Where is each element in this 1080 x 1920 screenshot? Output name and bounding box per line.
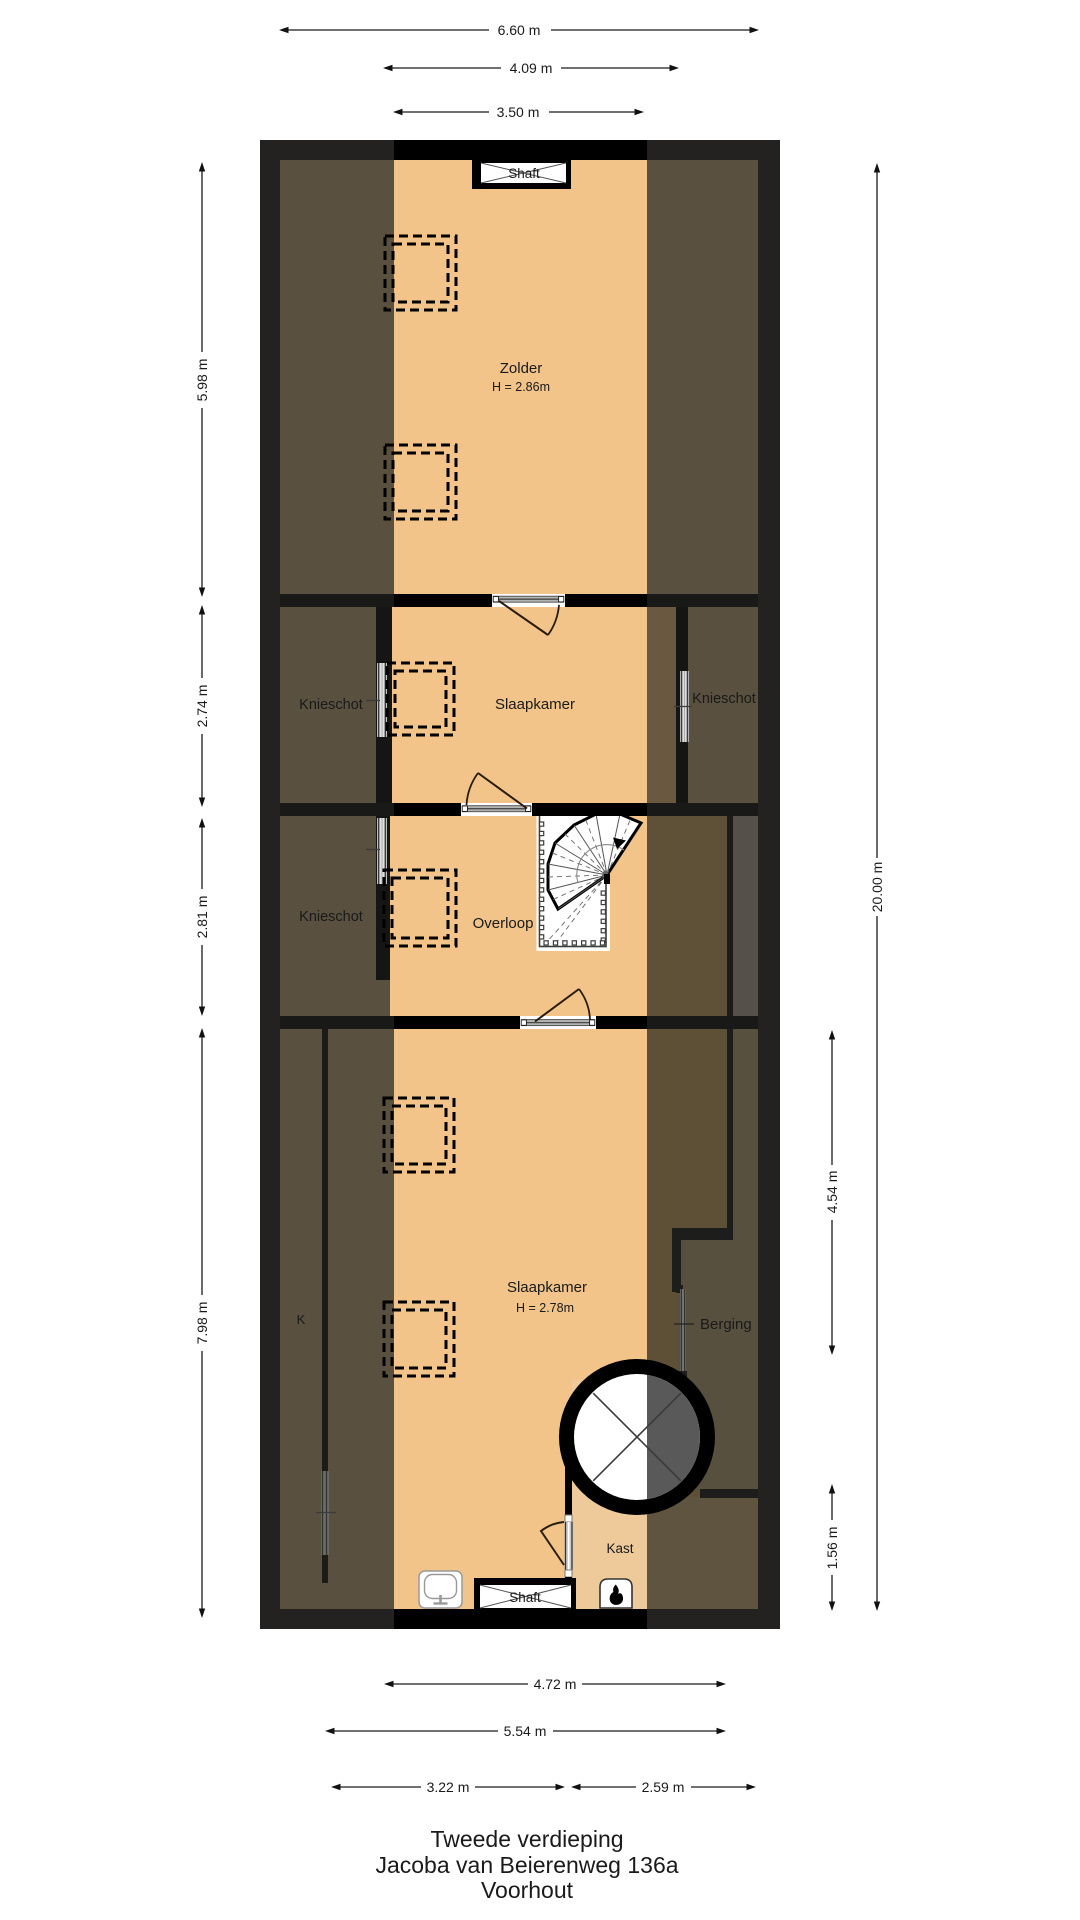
svg-text:2.81 m: 2.81 m [194,896,210,939]
svg-text:H = 2.78m: H = 2.78m [516,1301,574,1315]
svg-text:Voorhout: Voorhout [481,1877,574,1903]
svg-text:Kast: Kast [606,1541,633,1556]
svg-text:Shaft: Shaft [509,1590,541,1605]
svg-text:3.50 m: 3.50 m [497,104,540,120]
svg-text:Overloop: Overloop [473,915,534,932]
svg-text:3.22 m: 3.22 m [427,1779,470,1795]
svg-text:4.72 m: 4.72 m [534,1676,577,1692]
svg-text:Slaapkamer: Slaapkamer [495,696,575,713]
svg-text:Tweede verdieping: Tweede verdieping [430,1826,623,1852]
svg-text:1.56 m: 1.56 m [824,1527,840,1570]
svg-text:4.09 m: 4.09 m [510,60,553,76]
svg-text:Knieschot: Knieschot [299,697,363,713]
svg-text:2.74 m: 2.74 m [194,685,210,728]
svg-text:Knieschot: Knieschot [299,909,363,925]
svg-text:5.98 m: 5.98 m [194,359,210,402]
svg-text:2.59 m: 2.59 m [642,1779,685,1795]
svg-text:5.54 m: 5.54 m [504,1723,547,1739]
svg-text:6.60 m: 6.60 m [498,22,541,38]
svg-text:Shaft: Shaft [508,166,540,181]
svg-text:Jacoba van Beierenweg 136a: Jacoba van Beierenweg 136a [375,1852,678,1878]
svg-text:4.54 m: 4.54 m [824,1171,840,1214]
svg-text:Knieschot: Knieschot [692,691,756,707]
svg-text:Zolder: Zolder [500,360,543,377]
svg-text:20.00 m: 20.00 m [869,862,885,913]
svg-text:7.98 m: 7.98 m [194,1302,210,1345]
svg-text:K: K [297,1312,306,1327]
svg-text:Slaapkamer: Slaapkamer [507,1279,587,1296]
svg-text:H = 2.86m: H = 2.86m [492,380,550,394]
svg-text:Berging: Berging [700,1316,752,1333]
